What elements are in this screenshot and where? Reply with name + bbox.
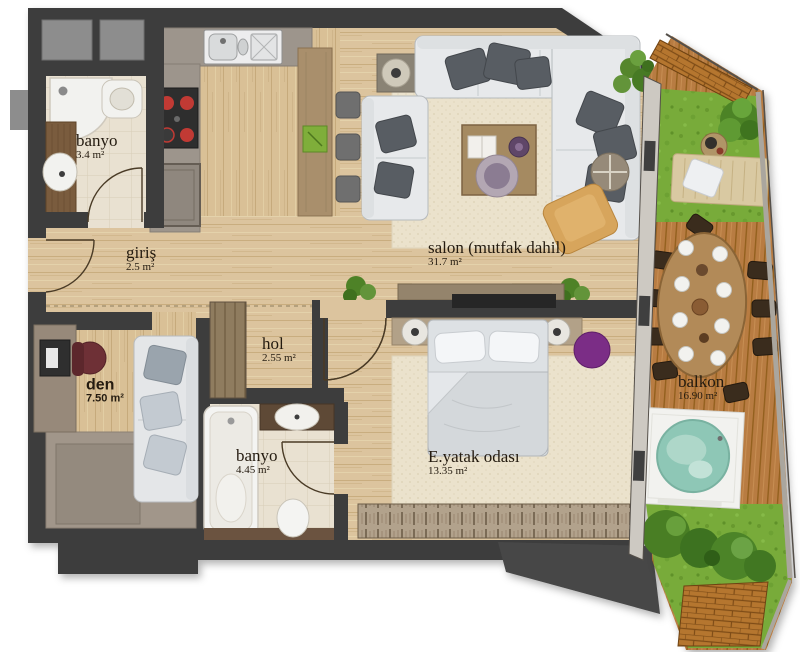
jacuzzi <box>642 408 745 509</box>
desktop-computer <box>40 340 70 376</box>
side-table-lamp <box>377 54 415 92</box>
purple-pouf <box>574 332 610 368</box>
kitchen-sink <box>204 30 282 64</box>
loveseat-sofa <box>362 96 428 220</box>
coffee-table <box>462 125 536 197</box>
toilet <box>43 153 77 191</box>
toilet2 <box>277 499 309 537</box>
bedroom-doorway <box>320 300 386 318</box>
kitchen-island <box>298 48 332 216</box>
shower-head-icon <box>59 87 68 96</box>
balcony <box>642 34 795 650</box>
bathroom2-sink <box>275 404 319 430</box>
floor-plan: banyo 3.4 m² giriş 2.5 m² salon (mutfak … <box>0 0 800 652</box>
brick-paving-bottom <box>678 582 768 646</box>
bed <box>428 320 548 456</box>
wood-strip-bottom <box>204 528 334 540</box>
sun-lounger <box>671 154 769 207</box>
bedroom-wardrobe <box>358 504 638 538</box>
bar-stools <box>336 92 360 202</box>
tv-screen <box>452 294 556 308</box>
nightstand-lamp-left <box>402 319 428 345</box>
hol-wardrobe <box>210 302 246 398</box>
floor-plan-drawing <box>0 0 800 652</box>
bathtub <box>204 406 258 536</box>
den-sofa <box>134 336 198 502</box>
bathroom1-sink <box>102 80 142 118</box>
